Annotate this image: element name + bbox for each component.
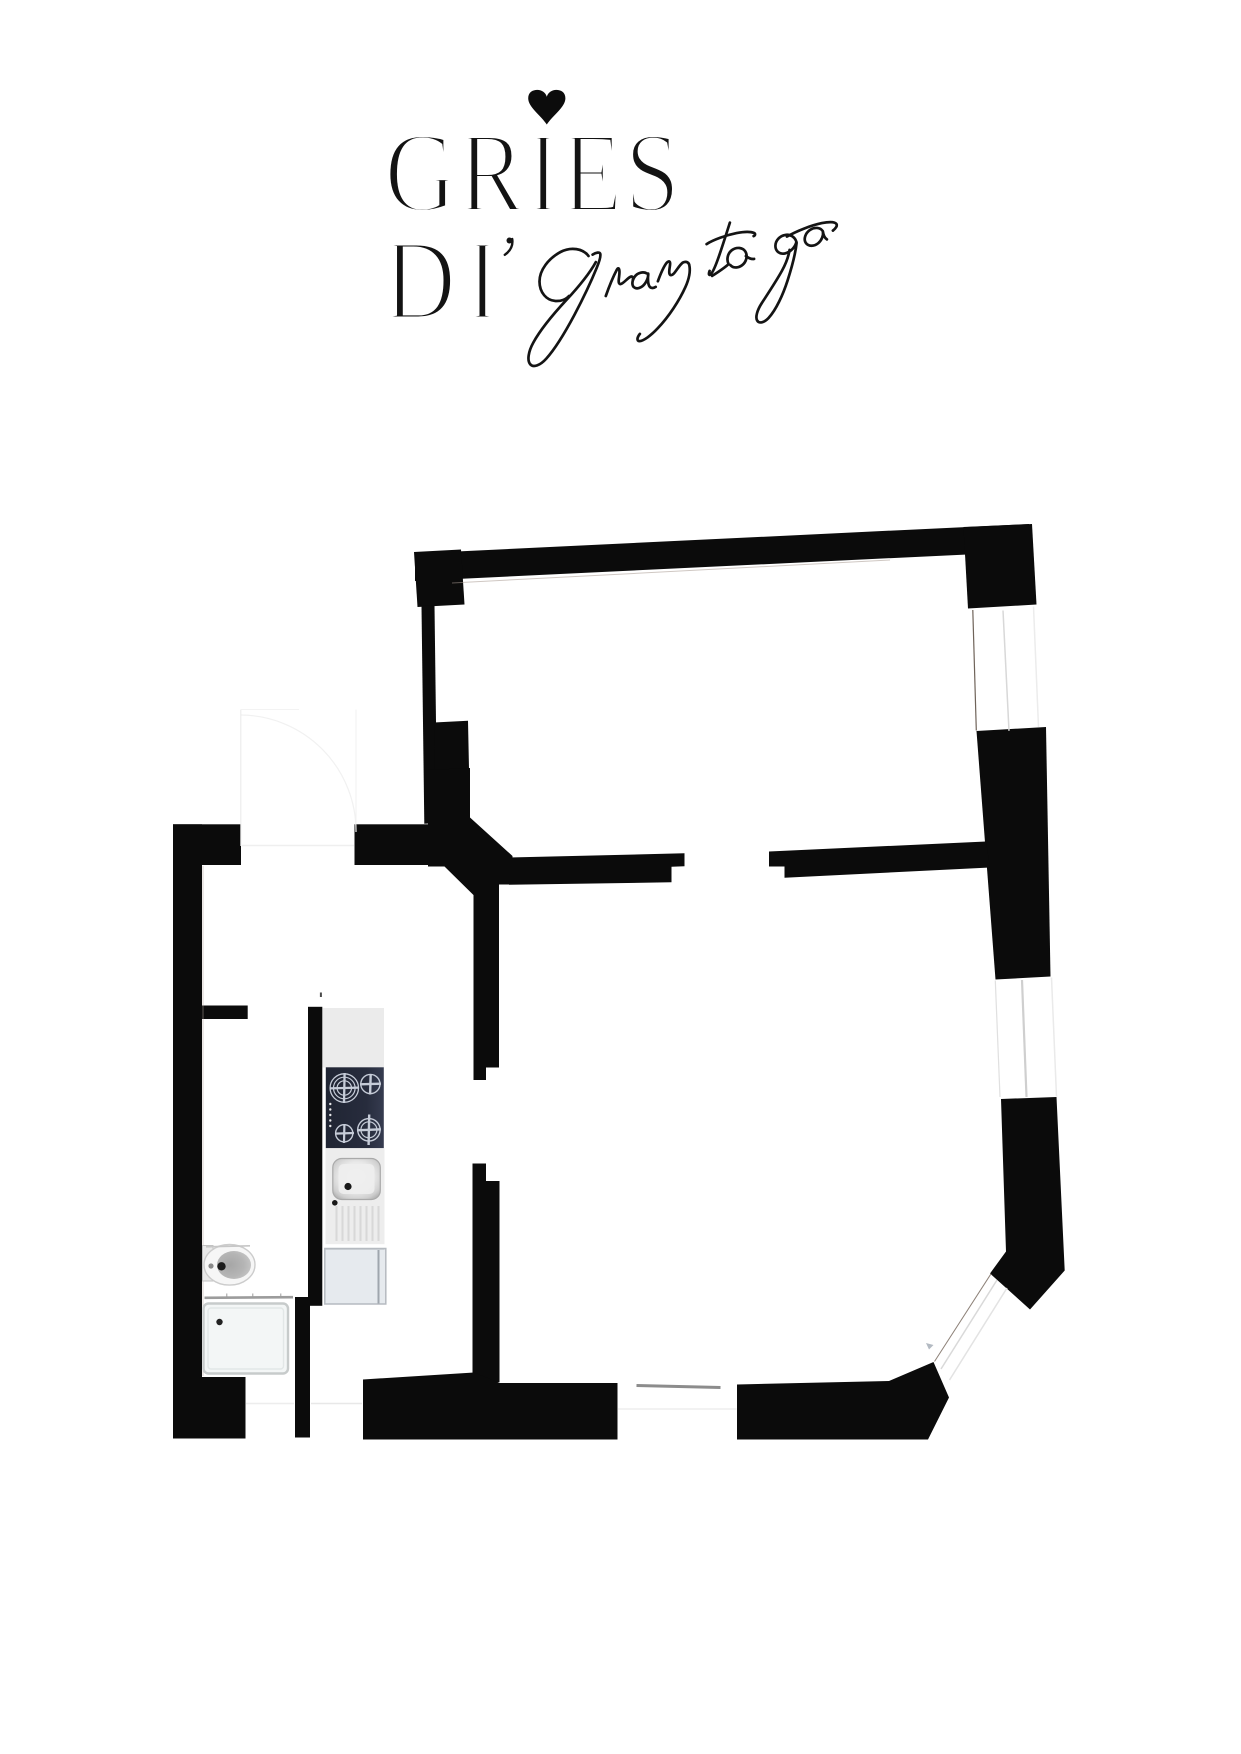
svg-text:DI: DI: [384, 217, 509, 344]
